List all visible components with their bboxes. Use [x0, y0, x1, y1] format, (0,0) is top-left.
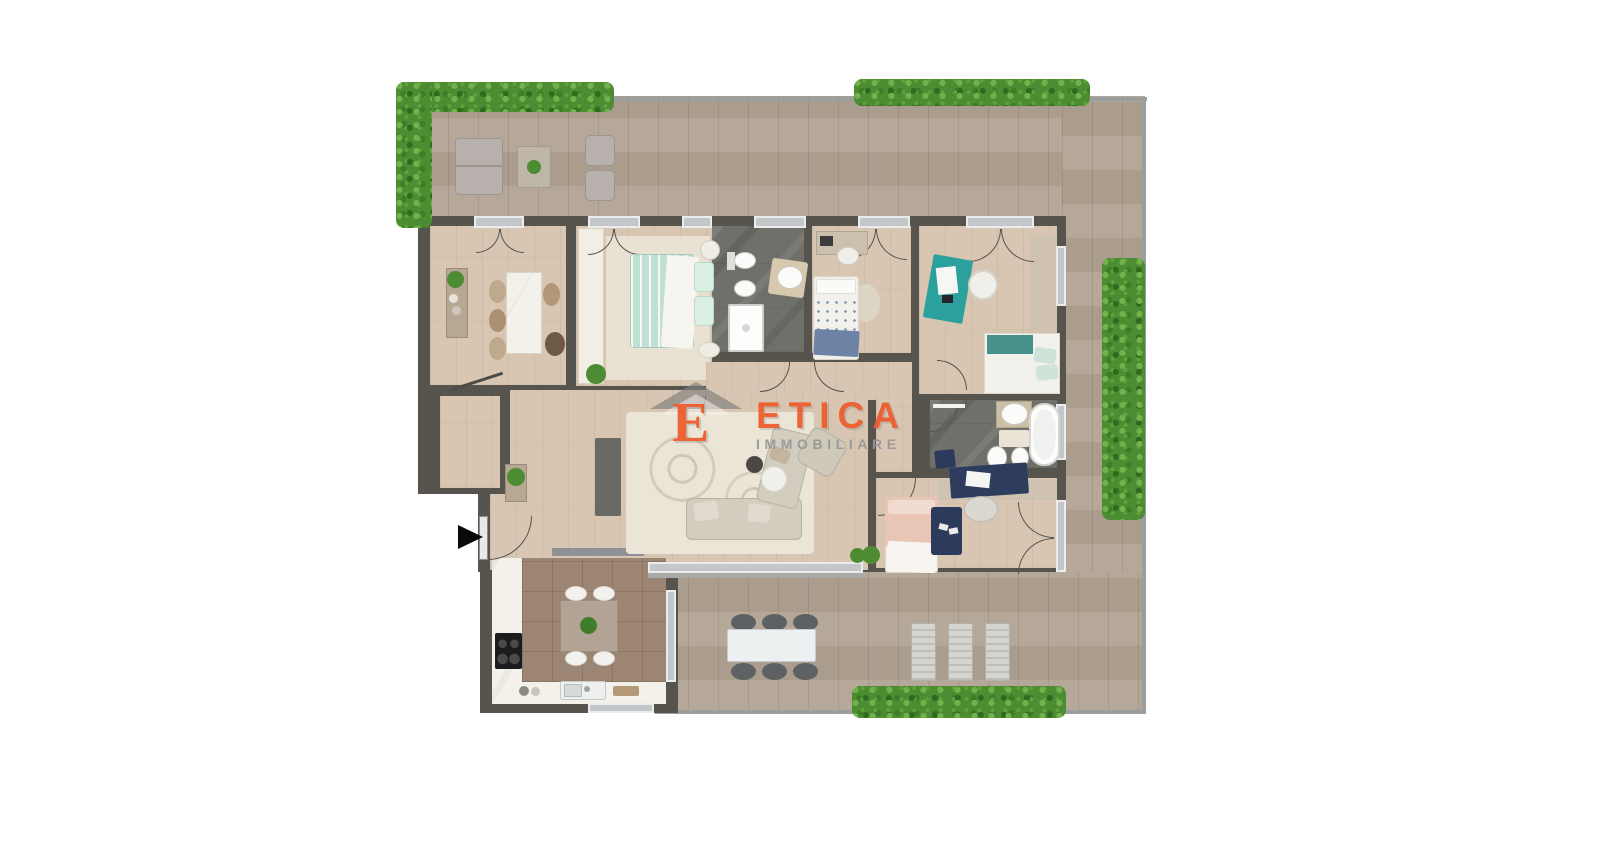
hedge-left [396, 82, 432, 228]
kitchen-plant [580, 617, 597, 634]
closet-floor [440, 396, 500, 488]
master-pouf [698, 342, 720, 358]
sofa-cushion1 [693, 500, 719, 521]
bedroom3-teal-band [987, 335, 1033, 354]
sliding-door-living [648, 562, 863, 573]
dining-chair4 [543, 283, 560, 306]
watermark-letter: E [672, 394, 709, 452]
sink1-basin [777, 266, 803, 289]
dining-chair1 [489, 280, 506, 303]
sofa-cushion2 [747, 503, 771, 523]
kitchen-jar1 [519, 686, 529, 696]
window-bedroom2-a [754, 216, 806, 228]
bathroom2-mat [999, 430, 1029, 447]
sun-lounger3 [985, 623, 1010, 681]
hedge-top-left [400, 82, 614, 112]
master-plant [586, 364, 606, 384]
bedroom3-laptop [942, 295, 953, 303]
hedge-top-right [854, 79, 1090, 106]
terrace-sofa-divider [455, 165, 503, 167]
kitchen-chair4 [593, 651, 615, 666]
bedroom4-sheet [886, 541, 937, 574]
window-master [588, 216, 640, 228]
watermark-subtitle: IMMOBILIARE [756, 436, 907, 452]
bedroom2-laptop [820, 236, 833, 246]
dining-sideboard-plant [447, 271, 464, 288]
kitchen-jar2 [531, 687, 540, 696]
bedroom2-pillow [816, 279, 856, 294]
toilet1-bowl [734, 252, 756, 269]
watermark: E ETICA IMMOBILIARE [650, 372, 907, 452]
window-bedroom3 [966, 216, 1034, 228]
bedroom4-pillow [888, 500, 935, 514]
kitchen-chair3 [565, 651, 587, 666]
window-bedroom2-b [858, 216, 910, 228]
door-bedroom4-glass [1056, 500, 1066, 572]
bedroom3-chair [968, 270, 998, 300]
kitchen-faucet [584, 686, 590, 692]
tv-unit [595, 438, 621, 516]
kitchen-sink-bowl [564, 684, 582, 697]
coffee-table [761, 466, 787, 492]
bedroom4-chair [964, 496, 998, 522]
watermark-brand: ETICA [756, 398, 907, 434]
sliding-door-threshold [648, 573, 863, 578]
window-bedroom3-side [1056, 246, 1066, 306]
bedroom2-throw [813, 329, 859, 357]
living-plant [850, 548, 865, 563]
dining-table [506, 272, 542, 354]
terrace-chair4 [731, 663, 756, 680]
bathtub-inner [1033, 409, 1056, 460]
bathroom2-basket [934, 449, 956, 469]
window-bathroom1 [682, 216, 712, 228]
terrace-table-plant [527, 160, 541, 174]
terrace-lounge-chair2 [585, 170, 615, 201]
dining-chair3 [489, 337, 506, 360]
living-console-plant [507, 468, 525, 486]
kitchen-chair2 [593, 586, 615, 601]
bedroom3-pillow1 [1033, 347, 1057, 365]
watermark-text: ETICA IMMOBILIARE [756, 372, 907, 452]
shower1-drain [742, 324, 750, 332]
bedroom3-paper [936, 266, 959, 295]
window-kitchen-bottom [588, 703, 654, 713]
dining-chair2 [489, 309, 506, 332]
kitchen-cooktop [495, 633, 522, 669]
master-pillow2 [694, 296, 714, 326]
bathroom2-basin [1001, 403, 1028, 425]
kitchen-board [613, 686, 639, 696]
coffee-tray [746, 456, 763, 473]
dining-chair5 [545, 332, 565, 356]
bedroom3-pillow2 [1035, 364, 1058, 381]
master-pillow1 [694, 262, 714, 292]
hedge-right [1102, 258, 1145, 520]
kitchen-chair1 [565, 586, 587, 601]
floor-plan-page: E ETICA IMMOBILIARE [0, 0, 1600, 851]
hedge-bottom [852, 686, 1066, 718]
bedroom2-chair [837, 247, 859, 265]
dining-decor2 [452, 306, 461, 315]
bedroom4-paper [965, 471, 990, 488]
window-kitchen-side [666, 590, 676, 682]
terrace-dining-table [727, 629, 816, 662]
terrace-lounge-chair1 [585, 135, 615, 166]
master-nightstand [700, 240, 720, 260]
sun-lounger1 [911, 623, 936, 681]
bidet1-bowl [734, 280, 756, 297]
window-dining [474, 216, 524, 228]
terrace-chair5 [762, 663, 787, 680]
dining-decor1 [449, 294, 458, 303]
terrace-chair6 [793, 663, 818, 680]
bathroom2-towel-bar [933, 404, 965, 408]
watermark-house-icon: E [650, 372, 742, 452]
sun-lounger2 [948, 623, 973, 681]
